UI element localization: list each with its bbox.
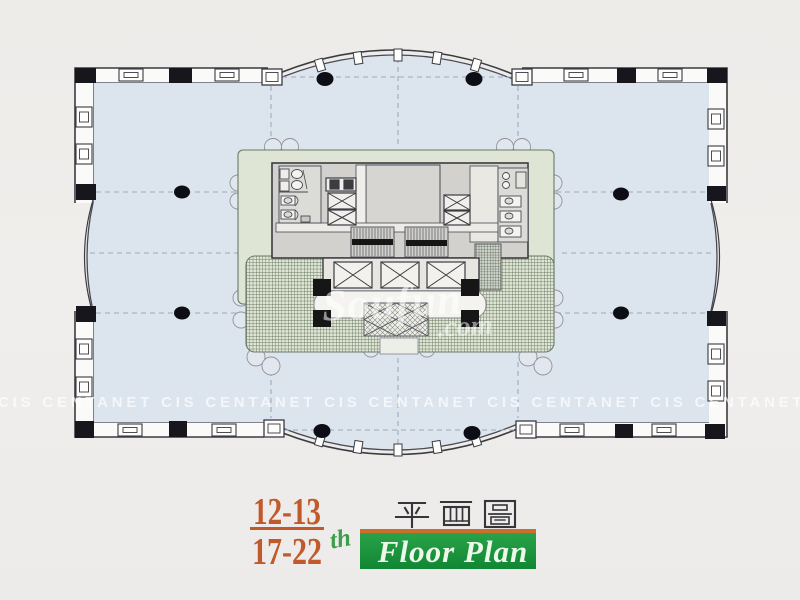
- svg-text:Floor Plan: Floor Plan: [377, 534, 528, 569]
- svg-text:.com: .com: [436, 310, 493, 344]
- svg-text:CIS CENTANET CIS CENTANET CI: CIS CENTANET CIS CENTANET CIS CENTANET C…: [0, 394, 800, 411]
- svg-text:17-22: 17-22: [252, 531, 322, 573]
- svg-text:12-13: 12-13: [253, 491, 321, 533]
